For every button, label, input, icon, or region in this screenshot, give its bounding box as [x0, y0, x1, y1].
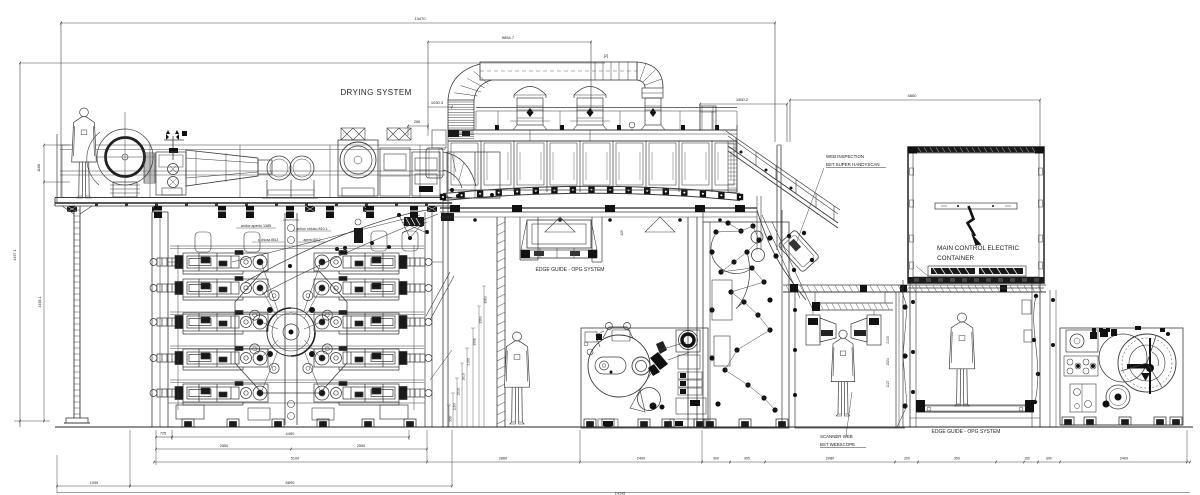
- svg-text:[2]: [2]: [604, 54, 608, 58]
- svg-text:BST WEBSCOPE: BST WEBSCOPE: [820, 442, 855, 447]
- svg-text:5100: 5100: [291, 457, 299, 461]
- svg-text:950: 950: [954, 457, 960, 461]
- svg-text:BST SUPER HANDYSCAN: BST SUPER HANDYSCAN: [826, 162, 880, 167]
- svg-text:300: 300: [713, 457, 719, 461]
- svg-text:1810: 1810: [462, 373, 466, 381]
- svg-text:SCANNER WEB: SCANNER WEB: [820, 434, 853, 439]
- svg-text:2100: 2100: [467, 358, 471, 366]
- svg-text:EDGE GUIDE - OPG SYSTEM: EDGE GUIDE - OPG SYSTEM: [932, 429, 1001, 435]
- svg-text:3963: 3963: [484, 296, 488, 304]
- svg-text:DRYING SYSTEM: DRYING SYSTEM: [340, 88, 411, 97]
- svg-text:CONTAINER: CONTAINER: [937, 255, 975, 262]
- svg-text:6890: 6890: [286, 480, 296, 485]
- svg-text:4450: 4450: [286, 431, 296, 436]
- svg-text:2860: 2860: [499, 457, 507, 461]
- svg-text:2550: 2550: [357, 444, 365, 448]
- svg-text:1550.2: 1550.2: [736, 97, 749, 102]
- svg-text:690: 690: [1046, 457, 1052, 461]
- svg-text:2400: 2400: [1120, 457, 1128, 461]
- svg-text:14195: 14195: [615, 492, 626, 495]
- svg-text:1524: 1524: [886, 358, 890, 366]
- svg-text:4497.1: 4497.1: [13, 250, 17, 261]
- svg-text:2080: 2080: [826, 457, 834, 461]
- svg-text:aperto 8512: aperto 8512: [303, 238, 320, 242]
- svg-text:1127: 1127: [886, 380, 890, 387]
- svg-text:4458.1: 4458.1: [38, 297, 42, 308]
- svg-text:EDGE GUIDE - OPG SYSTEM: EDGE GUIDE - OPG SYSTEM: [536, 267, 605, 273]
- svg-text:1030.3: 1030.3: [431, 100, 444, 105]
- svg-text:425: 425: [620, 230, 624, 236]
- svg-text:2400: 2400: [637, 457, 645, 461]
- svg-text:3563: 3563: [479, 316, 483, 324]
- svg-text:905: 905: [744, 457, 750, 461]
- svg-text:9854.7: 9854.7: [502, 35, 515, 40]
- svg-text:13470: 13470: [414, 16, 426, 21]
- svg-text:WEB INSPECTION: WEB INSPECTION: [826, 154, 864, 159]
- svg-text:950: 950: [449, 416, 453, 422]
- svg-text:1530: 1530: [457, 388, 461, 396]
- svg-text:c. chiusa 8513: c. chiusa 8513: [258, 238, 279, 242]
- svg-text:1168: 1168: [37, 164, 41, 172]
- svg-text:266: 266: [414, 120, 420, 124]
- svg-text:2130: 2130: [886, 336, 890, 344]
- svg-text:anilox aperto 1385: anilox aperto 1385: [241, 224, 271, 228]
- svg-text:1095: 1095: [90, 481, 98, 485]
- svg-text:200: 200: [904, 457, 910, 461]
- svg-text:1160: 1160: [453, 403, 457, 410]
- svg-text:3008: 3008: [473, 338, 477, 346]
- svg-text:MAIN CONTROL ELECTRIC: MAIN CONTROL ELECTRIC: [937, 245, 1020, 252]
- svg-text:4850: 4850: [908, 93, 918, 98]
- svg-text:2550: 2550: [220, 444, 228, 448]
- svg-text:725: 725: [160, 432, 166, 436]
- svg-text:anilox chiuso 810.1: anilox chiuso 810.1: [296, 227, 328, 231]
- svg-text:160: 160: [1024, 457, 1030, 461]
